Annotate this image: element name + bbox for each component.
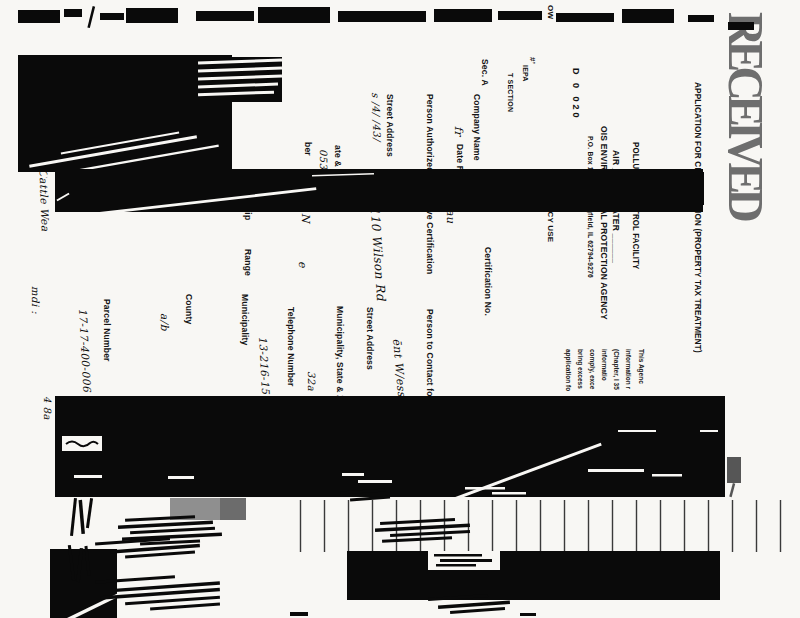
scanned-document-page: APPLICATION FOR CERTIFICATION (PROPERTY …	[0, 0, 800, 618]
scanner-artifacts	[0, 0, 800, 618]
